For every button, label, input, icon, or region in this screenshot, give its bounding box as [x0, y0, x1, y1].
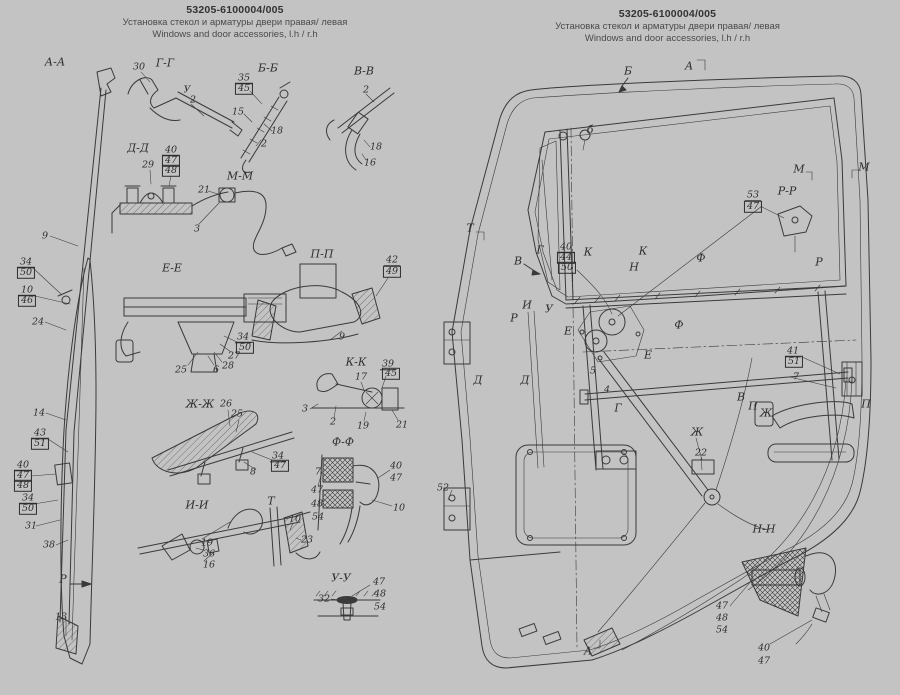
part-number-callout: 23 — [301, 535, 313, 546]
window-regulator — [578, 206, 770, 632]
part-number-callout: 3 — [302, 404, 308, 415]
part-number-callout: 10 — [393, 503, 405, 514]
section-view-label: М — [793, 163, 804, 176]
view-p-p-door-pocket — [252, 264, 388, 343]
part-number-callout: 50 — [19, 503, 37, 515]
part-number-callout: 25 — [231, 409, 243, 420]
part-number-callout: 2 — [190, 95, 196, 106]
view-g-g-bracket — [128, 72, 242, 136]
view-d-d-sill-strip — [112, 170, 228, 233]
view-n-n-door-stop — [730, 548, 836, 644]
part-number-callout: 9 — [42, 231, 48, 242]
section-view-label: В — [514, 255, 522, 268]
part-number-callout: 54 — [716, 625, 728, 636]
section-view-label: Ж-Ж — [186, 398, 214, 411]
section-view-label: У-У — [331, 572, 351, 585]
section-view-label: Д — [474, 374, 483, 387]
part-number-callout: 40 — [390, 461, 402, 472]
part-number-callout: 16 — [364, 158, 376, 169]
section-view-label: Т — [466, 222, 473, 235]
section-view-label: И — [522, 299, 532, 312]
part-number-callout: 47 — [744, 201, 762, 213]
part-number-callout: 40 — [758, 643, 770, 654]
section-view-label: Г — [536, 244, 543, 257]
section-view-label: П — [861, 398, 871, 411]
section-view-label: Н-Н — [753, 523, 776, 536]
part-number-callout: 36 — [203, 549, 215, 560]
section-view-label: А-А — [45, 56, 65, 69]
part-number-callout: 4 — [604, 385, 610, 396]
part-number-callout: 6 — [213, 365, 219, 376]
view-v-v-rod — [327, 88, 394, 170]
part-number-callout: 2 — [363, 85, 369, 96]
part-number-callout: 54 — [374, 602, 386, 613]
view-m-m-cable — [199, 188, 296, 256]
part-number-callout: 5 — [590, 366, 596, 377]
part-number-callout: 47 — [373, 577, 385, 588]
section-view-label: К-К — [346, 356, 367, 369]
section-view-label: П-П — [311, 248, 334, 261]
part-number-callout: 52 — [437, 483, 449, 494]
door-assembly — [444, 60, 871, 668]
part-number-callout: 45 — [382, 368, 400, 380]
part-number-callout: 48 — [374, 589, 386, 600]
part-number-callout: 3 — [194, 224, 200, 235]
section-view-label: М-М — [227, 170, 253, 183]
part-number-callout: 47 — [716, 601, 728, 612]
part-number-callout: 38 — [43, 540, 55, 551]
section-view-label: И-И — [186, 499, 209, 512]
section-view-label: А — [685, 60, 693, 73]
part-number-callout: 47 — [390, 473, 402, 484]
section-view-label: К — [584, 246, 593, 259]
part-number-callout: 50 — [17, 267, 35, 279]
part-number-callout: 51 — [785, 356, 803, 368]
part-number-callout: 8 — [250, 467, 256, 478]
technical-drawing — [0, 0, 900, 695]
part-number-callout: 10 — [289, 514, 301, 525]
section-view-label: б — [587, 124, 594, 137]
section-view-label: Д — [521, 374, 530, 387]
part-number-callout: 30 — [133, 62, 145, 73]
part-number-callout: 21 — [198, 185, 210, 196]
part-number-callout: 29 — [142, 160, 154, 171]
part-number-callout: 7 — [793, 372, 799, 383]
view-f-f-seal — [318, 455, 392, 544]
part-number-callout: 21 — [396, 420, 408, 431]
section-view-label: К — [639, 245, 648, 258]
view-i-i-inner-handle — [138, 509, 310, 561]
view-a-a-glass-run-rail — [31, 68, 115, 664]
part-number-callout: 50 — [558, 262, 576, 274]
view-zh-zh-armrest — [152, 410, 294, 484]
part-number-callout: 15 — [232, 107, 244, 118]
section-view-label: Р — [59, 573, 66, 586]
section-view-label: У — [545, 303, 553, 316]
part-number-callout: 19 — [357, 421, 369, 432]
part-number-callout: 19 — [201, 538, 213, 549]
part-number-callout: 2 — [261, 139, 267, 150]
part-number-callout: 2 — [330, 417, 336, 428]
part-number-callout: 46 — [18, 295, 36, 307]
part-number-callout: 25 — [175, 365, 187, 376]
part-number-callout: 24 — [32, 317, 44, 328]
section-view-label: Р-Р — [778, 185, 797, 198]
part-number-callout: 13 — [55, 612, 67, 623]
section-view-label: Г-Г — [156, 57, 174, 70]
part-number-callout: 18 — [370, 142, 382, 153]
part-number-callout: 18 — [271, 126, 283, 137]
section-view-label: Б-Б — [258, 62, 278, 75]
part-number-callout: 48 — [162, 165, 180, 177]
section-view-label: В — [737, 391, 745, 404]
section-view-label: Е-Е — [162, 262, 182, 275]
section-view-label: Г — [614, 402, 621, 415]
parts-catalog-page: 53205-6100004/005 Установка стекол и арм… — [0, 0, 900, 695]
part-number-callout: 47 — [311, 485, 323, 496]
section-view-label: Р — [510, 312, 517, 325]
section-view-label: Е — [564, 325, 572, 338]
view-r-r-mirror-bracket — [778, 206, 812, 252]
section-view-label: Б — [624, 65, 632, 78]
section-view-label: Д-Д — [127, 142, 149, 155]
part-number-callout: 7 — [315, 467, 321, 478]
section-view-label: Ф — [674, 319, 683, 332]
part-number-callout: 22 — [695, 448, 707, 459]
part-number-callout: 9 — [339, 332, 345, 343]
section-view-label: Р — [815, 256, 822, 269]
part-number-callout: 48 — [14, 480, 32, 492]
part-number-callout: 49 — [383, 266, 401, 278]
section-view-label: Ф — [696, 252, 705, 265]
view-r-arrow-left — [70, 581, 91, 587]
part-number-callout: 45 — [235, 83, 253, 95]
part-number-callout: 16 — [203, 560, 215, 571]
section-view-label: Ж — [691, 426, 703, 439]
part-number-callout: 51 — [31, 438, 49, 450]
section-view-label: М — [858, 161, 869, 174]
section-view-label: Н — [629, 261, 639, 274]
part-number-callout: 47 — [758, 656, 770, 667]
section-view-label: Т — [267, 495, 274, 508]
part-number-callout: 32 — [318, 594, 330, 605]
part-number-callout: 47 — [271, 460, 289, 472]
part-number-callout: 17 — [355, 372, 367, 383]
section-view-label: Ж — [760, 407, 772, 420]
part-number-callout: 48 — [311, 499, 323, 510]
part-number-callout: 28 — [222, 361, 234, 372]
part-number-callout: 31 — [25, 521, 37, 532]
section-view-label: В-В — [354, 65, 374, 78]
part-number-callout: 14 — [33, 408, 45, 419]
section-view-label: А — [584, 645, 592, 658]
part-number-callout: 54 — [312, 512, 324, 523]
section-view-label: П — [748, 400, 758, 413]
section-view-label: Ф-Ф — [332, 436, 354, 449]
part-number-callout: 48 — [716, 613, 728, 624]
section-view-label: Е — [644, 349, 652, 362]
